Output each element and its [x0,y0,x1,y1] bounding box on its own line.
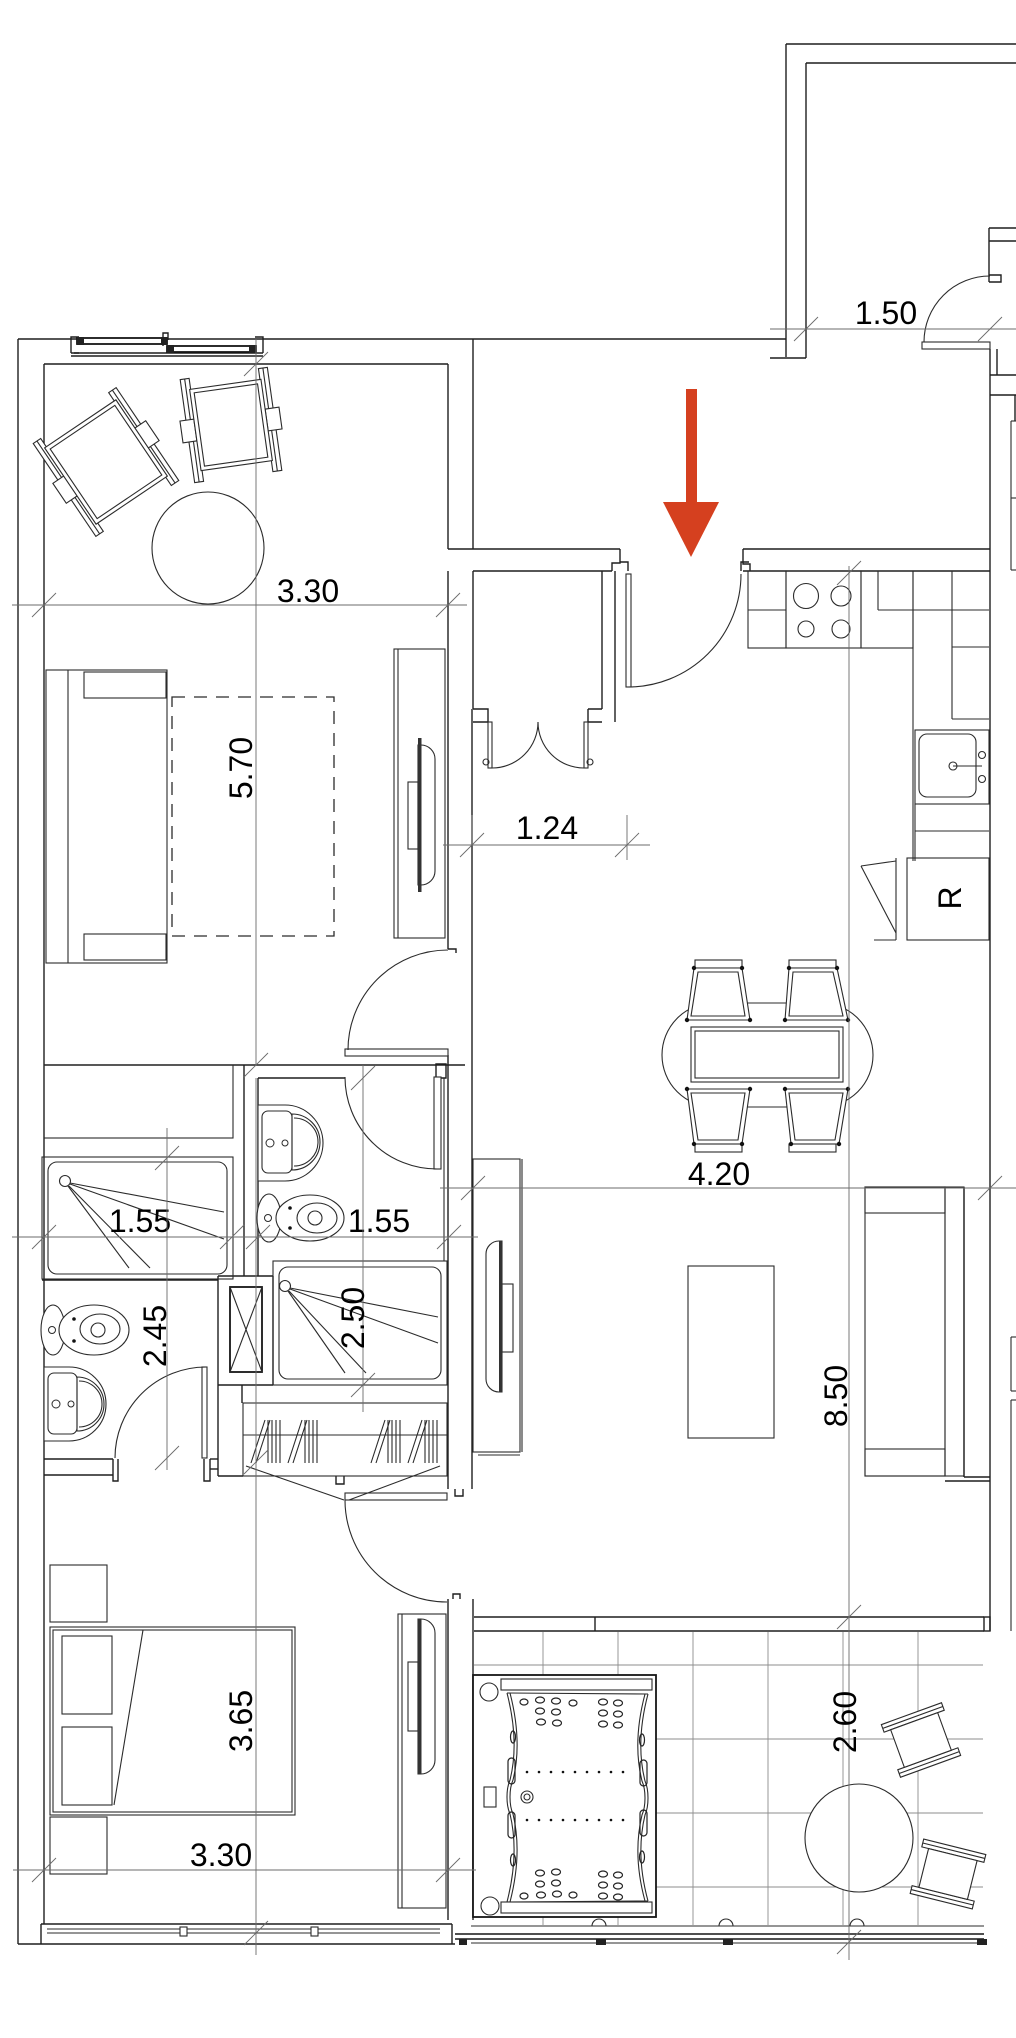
svg-text:2.45: 2.45 [137,1305,173,1367]
svg-text:3.65: 3.65 [223,1690,259,1752]
svg-text:4.20: 4.20 [688,1156,750,1192]
svg-text:1.55: 1.55 [109,1203,171,1239]
svg-text:1.55: 1.55 [348,1203,410,1239]
svg-text:R: R [932,886,968,909]
svg-text:5.70: 5.70 [223,737,259,799]
svg-text:8.50: 8.50 [818,1365,854,1427]
svg-text:1.50: 1.50 [855,295,917,331]
svg-text:2.60: 2.60 [827,1691,863,1753]
svg-text:1.24: 1.24 [516,810,578,846]
svg-text:3.30: 3.30 [277,573,339,609]
svg-text:3.30: 3.30 [190,1837,252,1873]
svg-text:2.50: 2.50 [335,1287,371,1349]
